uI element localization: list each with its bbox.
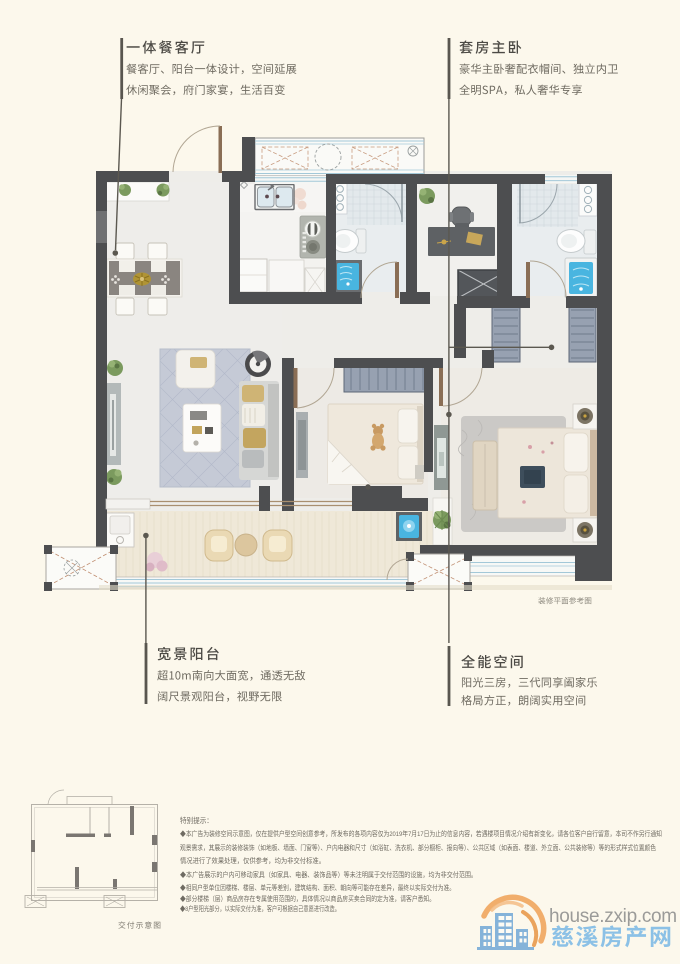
svg-text:◆本广告展示的户内可移动家具（如家具、电器、装饰品等）等未注: ◆本广告展示的户内可移动家具（如家具、电器、装饰品等）等未注明属于交付范围的设施… — [180, 870, 477, 879]
svg-text:house.zxip.com: house.zxip.com — [549, 906, 677, 927]
svg-text:◆部分楼梯（层）商品房存在专属使用范围的，具体情况以商品房买: ◆部分楼梯（层）商品房存在专属使用范围的，具体情况以商品房买卖合同的定为准，请客… — [180, 894, 435, 903]
svg-text:特别提示：: 特别提示： — [180, 816, 213, 825]
svg-text:◆本广告为装修空间示意图，仅在提供户型空间创意参考，所发布的: ◆本广告为装修空间示意图，仅在提供户型空间创意参考，所发布的各项内容仅为2019… — [180, 829, 662, 838]
svg-text:观景需求，其展示的装修装饰（如地板、墙面、门窗等）、户内电器: 观景需求，其展示的装修装饰（如地板、墙面、门窗等）、户内电器和尺寸（如浴缸、洗衣… — [180, 843, 656, 852]
svg-text:◆相同户型单位因楼梯、楼层、单元等差别，建筑结构、面积、朝向: ◆相同户型单位因楼梯、楼层、单元等差别，建筑结构、面积、朝向等可能存在差异，最终… — [180, 883, 455, 892]
svg-text:情况进行了效果处理，仅供参考，均为非交付标准。: 情况进行了效果处理，仅供参考，均为非交付标准。 — [180, 856, 325, 865]
svg-text:◆8户型阳光部分，以实际交付为准，客户可根据自己意愿进行改造: ◆8户型阳光部分，以实际交付为准，客户可根据自己意愿进行改造。 — [180, 904, 340, 913]
